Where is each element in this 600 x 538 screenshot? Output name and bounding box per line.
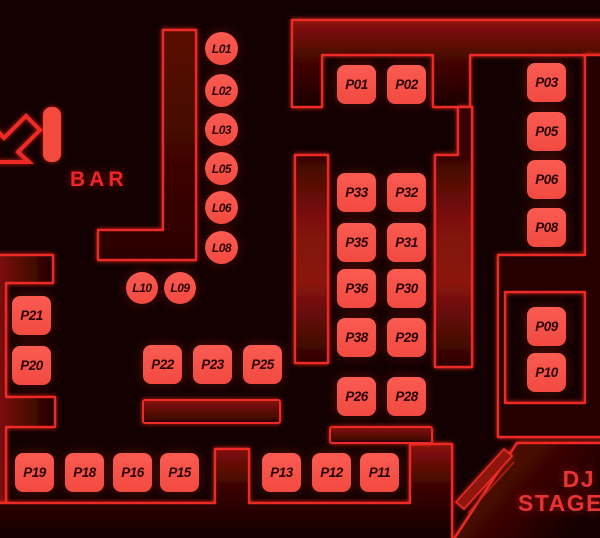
seat-P02[interactable]: P02 (387, 65, 426, 104)
seat-P33[interactable]: P33 (337, 173, 376, 212)
seat-P16[interactable]: P16 (113, 453, 152, 492)
seat-L01[interactable]: L01 (205, 32, 238, 65)
seat-P18[interactable]: P18 (65, 453, 104, 492)
seat-P22[interactable]: P22 (143, 345, 182, 384)
seat-P30[interactable]: P30 (387, 269, 426, 308)
service-counter-right (330, 427, 432, 443)
seat-P26[interactable]: P26 (337, 377, 376, 416)
seat-P15[interactable]: P15 (160, 453, 199, 492)
seat-P09[interactable]: P09 (527, 307, 566, 346)
dj-stage-label-line2: STAGE (453, 491, 600, 515)
wall-mid-right (435, 107, 472, 367)
seat-P06[interactable]: P06 (527, 160, 566, 199)
seat-L09[interactable]: L09 (164, 272, 196, 304)
seat-P08[interactable]: P08 (527, 208, 566, 247)
seat-P12[interactable]: P12 (312, 453, 351, 492)
seat-P28[interactable]: P28 (387, 377, 426, 416)
seat-L10[interactable]: L10 (126, 272, 158, 304)
seat-P11[interactable]: P11 (360, 453, 399, 492)
seat-P29[interactable]: P29 (387, 318, 426, 357)
seat-L06[interactable]: L06 (205, 191, 238, 224)
seat-P03[interactable]: P03 (527, 63, 566, 102)
seat-P35[interactable]: P35 (337, 223, 376, 262)
seat-P32[interactable]: P32 (387, 173, 426, 212)
seat-P05[interactable]: P05 (527, 112, 566, 151)
seat-P10[interactable]: P10 (527, 353, 566, 392)
seat-L08[interactable]: L08 (205, 231, 238, 264)
bar-counter (98, 30, 196, 260)
seat-P13[interactable]: P13 (262, 453, 301, 492)
dj-stage-label: DJ STAGE (453, 467, 600, 516)
seat-P19[interactable]: P19 (15, 453, 54, 492)
entrance-door-bar (43, 107, 61, 162)
seat-P38[interactable]: P38 (337, 318, 376, 357)
seat-P01[interactable]: P01 (337, 65, 376, 104)
entrance-arrow-icon (0, 116, 40, 162)
seat-L05[interactable]: L05 (205, 152, 238, 185)
seat-L02[interactable]: L02 (205, 74, 238, 107)
seat-P31[interactable]: P31 (387, 223, 426, 262)
service-counter-left (143, 400, 280, 423)
seat-P21[interactable]: P21 (12, 296, 51, 335)
seat-P25[interactable]: P25 (243, 345, 282, 384)
bar-area-label: BAR (70, 168, 128, 192)
wall-mid-left (295, 155, 328, 363)
dj-stage-label-line1: DJ (453, 467, 595, 491)
seat-P20[interactable]: P20 (12, 346, 51, 385)
seat-P36[interactable]: P36 (337, 269, 376, 308)
seat-L03[interactable]: L03 (205, 113, 238, 146)
club-floor-plan: BAR DJ STAGE L01 L02 L03 L05 L06 L08 L10… (0, 0, 600, 538)
seat-P23[interactable]: P23 (193, 345, 232, 384)
